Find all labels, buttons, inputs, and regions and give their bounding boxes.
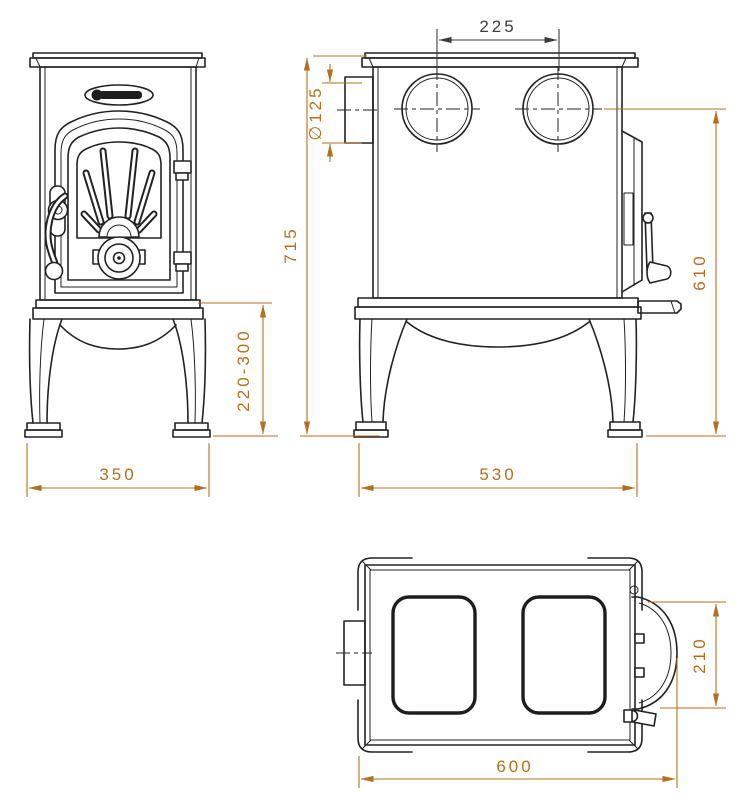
front-top-plate xyxy=(30,53,205,67)
dim-overall-height: 715 xyxy=(281,56,380,436)
top-body xyxy=(365,565,635,745)
front-view-drawing xyxy=(25,53,210,437)
front-base xyxy=(25,300,210,437)
dim-overall-depth: 600 xyxy=(359,658,677,788)
front-feet xyxy=(25,423,210,437)
top-door-handle xyxy=(624,710,656,726)
side-top-plate xyxy=(362,53,638,67)
top-flue-outlet-rear xyxy=(515,66,602,152)
side-handle-knob xyxy=(647,262,671,283)
top-corner-caps xyxy=(358,558,642,752)
door-fan-ornament xyxy=(84,151,154,237)
side-view-drawing xyxy=(337,53,681,437)
door-handle xyxy=(46,186,68,280)
side-base xyxy=(354,298,642,437)
dimension-annotations: 225 ∅125 715 610 220-300 xyxy=(27,17,726,788)
rear-flue-collar xyxy=(337,77,381,143)
dim-front-width: 350 xyxy=(27,443,209,497)
side-body xyxy=(373,67,622,298)
dim-door-width: 210 xyxy=(648,602,726,708)
dim-flue-diameter: ∅125 xyxy=(306,64,362,162)
dim-flue-center-height-label: 610 xyxy=(690,253,709,290)
top-flue-outlet-front xyxy=(394,66,480,152)
dim-door-width-label: 210 xyxy=(690,636,709,673)
dim-front-width-label: 350 xyxy=(99,465,136,484)
dim-base-depth: 530 xyxy=(359,443,637,497)
stove-three-view-drawing: 225 ∅125 715 610 220-300 xyxy=(0,0,755,810)
side-door-profile xyxy=(622,131,671,292)
top-rear-collar xyxy=(336,621,372,685)
dim-overall-height-label: 715 xyxy=(281,226,300,263)
dim-overall-depth-label: 600 xyxy=(496,757,533,776)
top-door-profile xyxy=(624,586,677,726)
dim-flue-spacing-label: 225 xyxy=(479,17,516,36)
side-feet xyxy=(354,422,642,437)
side-ash-lip xyxy=(638,301,681,313)
top-cook-plates xyxy=(393,597,605,713)
brand-logo-text-blob xyxy=(99,91,142,99)
dim-flue-spacing: 225 xyxy=(437,17,559,71)
dim-base-depth-label: 530 xyxy=(479,465,516,484)
dim-flue-diameter-label: ∅125 xyxy=(306,85,325,140)
stove-technical-drawing-page: 225 ∅125 715 610 220-300 xyxy=(0,0,755,810)
front-door xyxy=(46,111,192,293)
air-control-knob xyxy=(93,237,145,279)
top-view-drawing xyxy=(336,558,677,752)
dim-leg-height: 220-300 xyxy=(198,303,278,436)
brand-logo xyxy=(85,85,153,105)
dim-leg-height-label: 220-300 xyxy=(234,328,253,411)
